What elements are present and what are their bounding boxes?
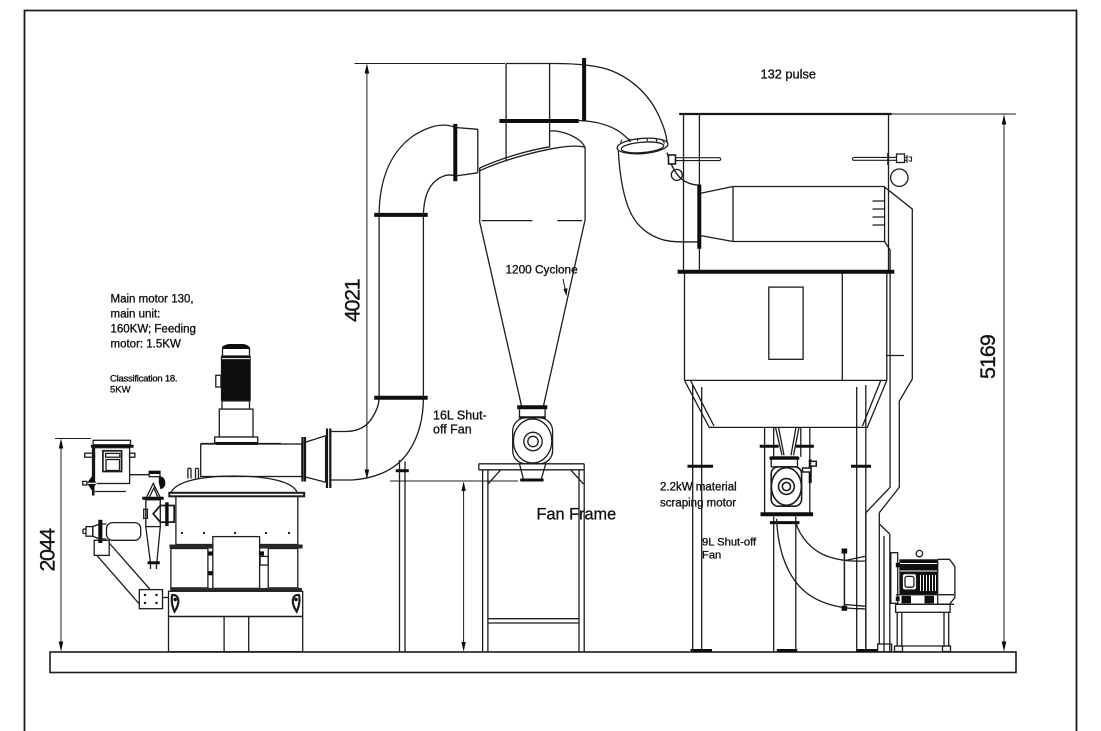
svg-text:off Fan: off Fan (433, 423, 472, 437)
svg-text:Classification 18.: Classification 18. (110, 374, 177, 385)
svg-text:5KW: 5KW (110, 385, 131, 396)
svg-text:160KW; Feeding: 160KW; Feeding (111, 323, 196, 335)
svg-text:5169: 5169 (976, 335, 1000, 379)
svg-text:Main motor 130,: Main motor 130, (111, 294, 194, 306)
svg-text:1200 Cyclone: 1200 Cyclone (506, 263, 579, 277)
svg-text:motor: 1.5KW: motor: 1.5KW (111, 338, 181, 350)
svg-text:4021: 4021 (341, 279, 365, 322)
svg-text:2044: 2044 (36, 528, 60, 572)
svg-text:scraping motor: scraping motor (660, 498, 736, 510)
svg-text:9L Shut-off: 9L Shut-off (702, 537, 757, 549)
svg-text:132 pulse: 132 pulse (761, 67, 817, 82)
svg-text:2.2kW material: 2.2kW material (660, 482, 737, 494)
svg-text:16L Shut-: 16L Shut- (433, 409, 487, 423)
svg-text:main unit:: main unit: (111, 309, 161, 321)
svg-text:Fan: Fan (702, 550, 721, 562)
svg-text:Fan Frame: Fan Frame (537, 506, 617, 524)
